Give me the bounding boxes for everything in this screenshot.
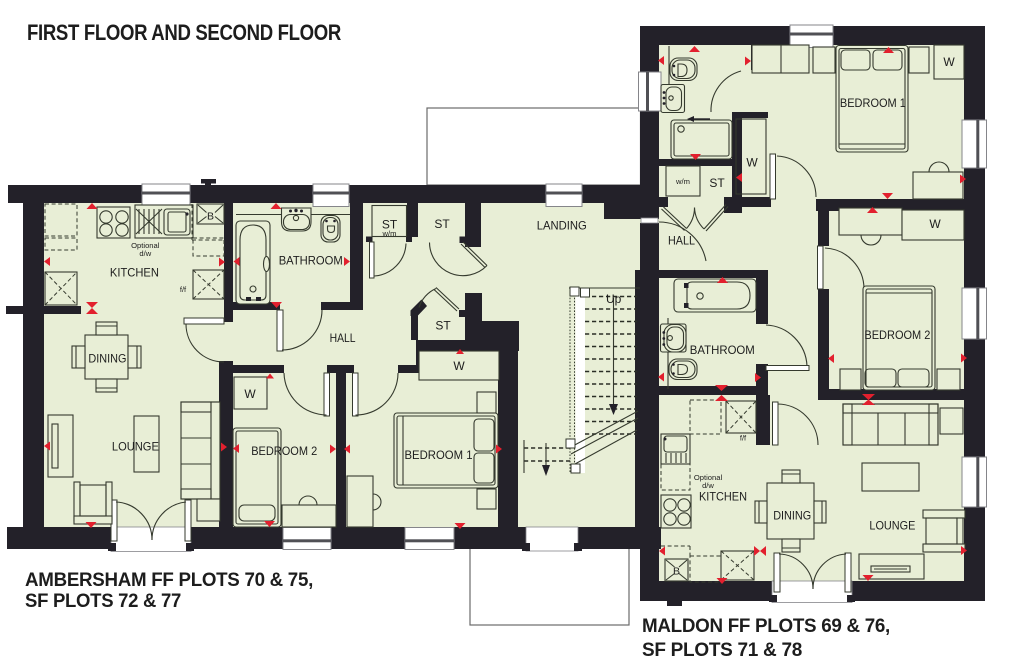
- svg-text:BEDROOM 1: BEDROOM 1: [840, 96, 906, 110]
- svg-text:ST: ST: [435, 319, 451, 333]
- svg-text:ST: ST: [434, 217, 450, 231]
- svg-text:Up: Up: [606, 292, 622, 306]
- svg-text:DINING: DINING: [88, 351, 126, 365]
- svg-text:W: W: [746, 156, 758, 170]
- svg-text:DINING: DINING: [773, 509, 811, 523]
- svg-text:KITCHEN: KITCHEN: [699, 490, 747, 504]
- svg-text:B: B: [673, 566, 680, 578]
- svg-text:W: W: [244, 387, 256, 401]
- svg-text:B: B: [207, 211, 214, 223]
- svg-text:LANDING: LANDING: [537, 219, 587, 233]
- svg-text:AMBERSHAM FF PLOTS 70 & 75,: AMBERSHAM FF PLOTS 70 & 75,: [25, 569, 313, 591]
- svg-text:W: W: [929, 217, 941, 231]
- svg-text:FIRST FLOOR AND SECOND FLOOR: FIRST FLOOR AND SECOND FLOOR: [27, 20, 341, 45]
- svg-text:BEDROOM 2: BEDROOM 2: [864, 328, 930, 342]
- svg-text:W: W: [453, 359, 465, 373]
- svg-text:BEDROOM 1: BEDROOM 1: [405, 448, 473, 462]
- svg-text:ST: ST: [709, 176, 725, 190]
- svg-text:f/f: f/f: [740, 434, 747, 443]
- svg-text:W: W: [943, 55, 955, 69]
- svg-text:BATHROOM: BATHROOM: [690, 343, 755, 357]
- svg-text:d/w: d/w: [139, 249, 151, 258]
- svg-text:LOUNGE: LOUNGE: [869, 519, 915, 533]
- svg-text:KITCHEN: KITCHEN: [110, 266, 159, 280]
- svg-text:LOUNGE: LOUNGE: [112, 439, 159, 453]
- svg-text:SF PLOTS 72 & 77: SF PLOTS 72 & 77: [25, 590, 181, 612]
- svg-text:BATHROOM: BATHROOM: [279, 253, 343, 267]
- svg-text:HALL: HALL: [330, 331, 356, 345]
- svg-text:MALDON FF PLOTS 69 & 76,: MALDON FF PLOTS 69 & 76,: [642, 615, 890, 637]
- svg-text:BEDROOM 2: BEDROOM 2: [251, 444, 317, 458]
- svg-text:w/m: w/m: [382, 229, 397, 238]
- svg-text:w/m: w/m: [675, 177, 690, 186]
- svg-text:HALL: HALL: [668, 234, 695, 248]
- svg-text:SF PLOTS 71 & 78: SF PLOTS 71 & 78: [642, 639, 802, 661]
- svg-text:f/f: f/f: [180, 285, 187, 294]
